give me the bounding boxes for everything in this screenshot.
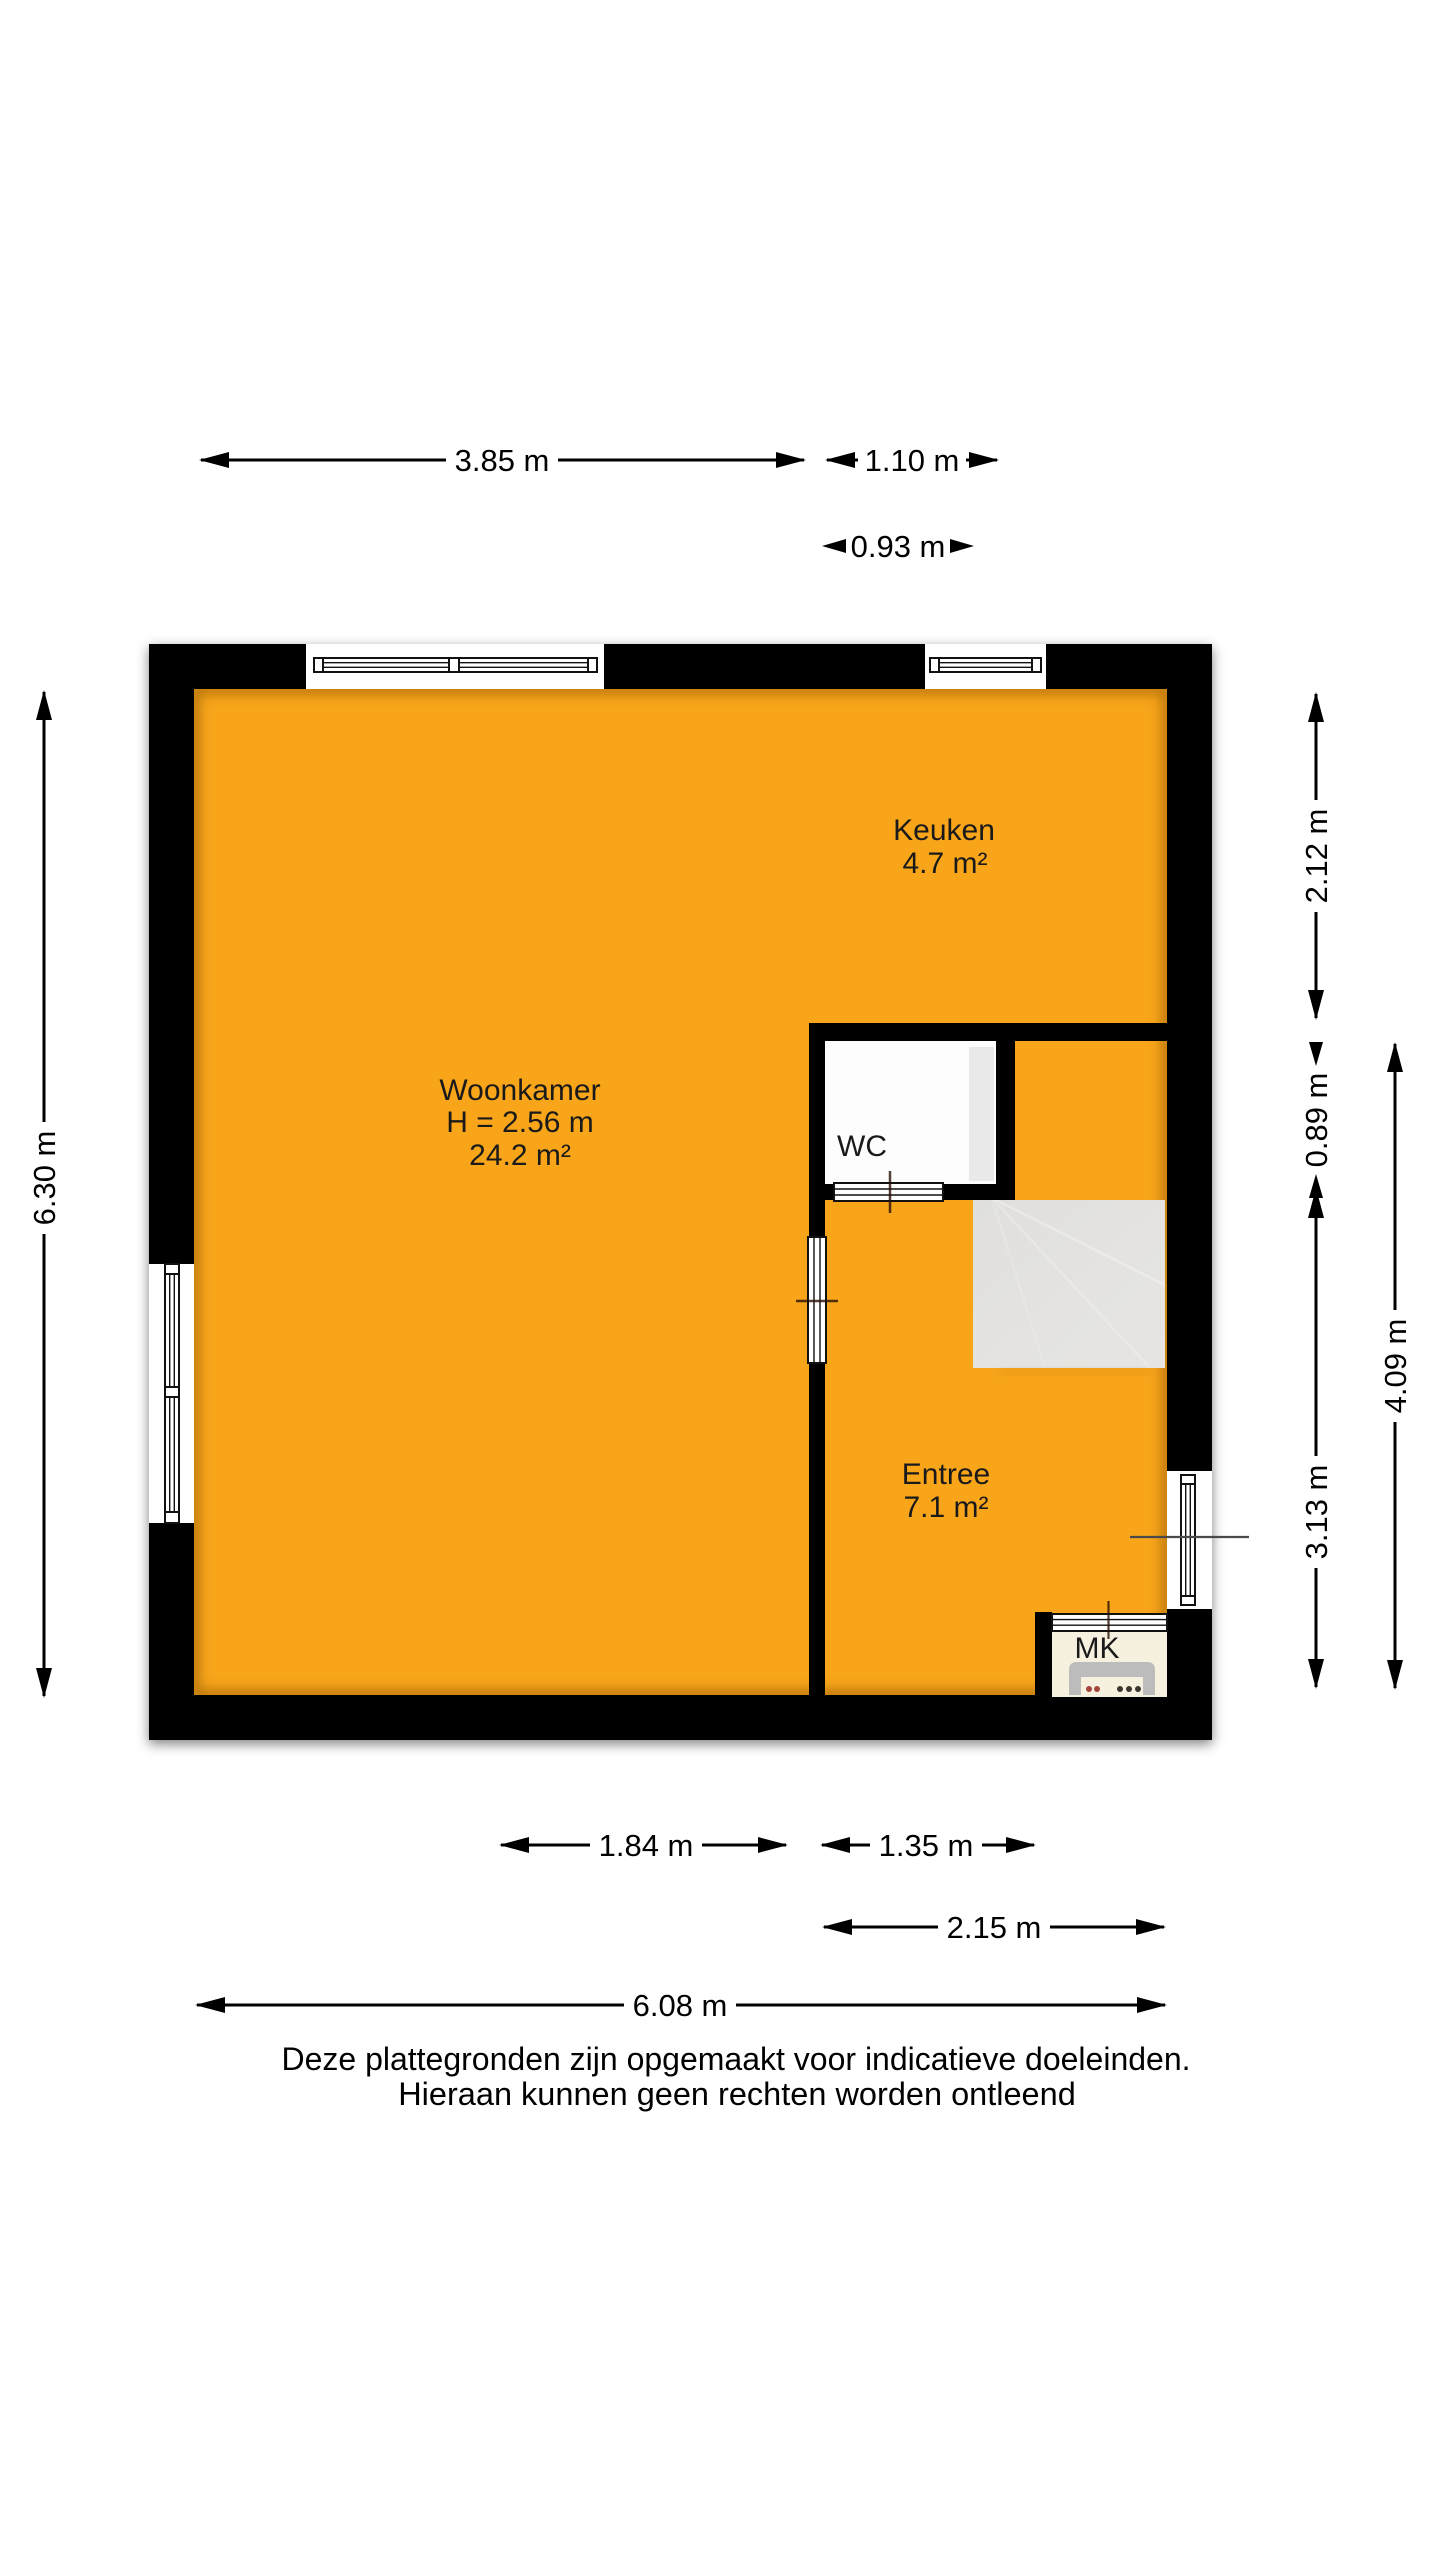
svg-text:1.10 m: 1.10 m bbox=[865, 443, 960, 478]
svg-text:6.30 m: 6.30 m bbox=[27, 1131, 62, 1226]
svg-text:3.13 m: 3.13 m bbox=[1299, 1465, 1334, 1560]
svg-text:Woonkamer: Woonkamer bbox=[439, 1074, 600, 1107]
svg-text:7.1 m²: 7.1 m² bbox=[903, 1491, 988, 1524]
svg-text:1.35 m: 1.35 m bbox=[879, 1828, 974, 1863]
svg-text:Entree: Entree bbox=[902, 1458, 990, 1491]
svg-text:Keuken: Keuken bbox=[893, 814, 995, 847]
svg-text:4.7 m²: 4.7 m² bbox=[902, 847, 987, 880]
svg-text:4.09 m: 4.09 m bbox=[1378, 1319, 1413, 1414]
svg-text:Hieraan kunnen geen rechten wo: Hieraan kunnen geen rechten worden ontle… bbox=[398, 2076, 1076, 2112]
svg-text:WC: WC bbox=[837, 1130, 887, 1163]
svg-text:0.93 m: 0.93 m bbox=[851, 529, 946, 564]
svg-text:0.89 m: 0.89 m bbox=[1299, 1073, 1334, 1168]
svg-text:2.12 m: 2.12 m bbox=[1299, 809, 1334, 904]
svg-text:Deze plattegronden zijn opgema: Deze plattegronden zijn opgemaakt voor i… bbox=[281, 2041, 1190, 2077]
svg-text:24.2 m²: 24.2 m² bbox=[469, 1139, 571, 1172]
svg-text:6.08 m: 6.08 m bbox=[633, 1988, 728, 2023]
svg-text:1.84 m: 1.84 m bbox=[599, 1828, 694, 1863]
svg-text:3.85 m: 3.85 m bbox=[455, 443, 550, 478]
svg-text:H = 2.56 m: H = 2.56 m bbox=[446, 1106, 594, 1139]
svg-text:2.15 m: 2.15 m bbox=[947, 1910, 1042, 1945]
svg-text:MK: MK bbox=[1075, 1632, 1120, 1665]
